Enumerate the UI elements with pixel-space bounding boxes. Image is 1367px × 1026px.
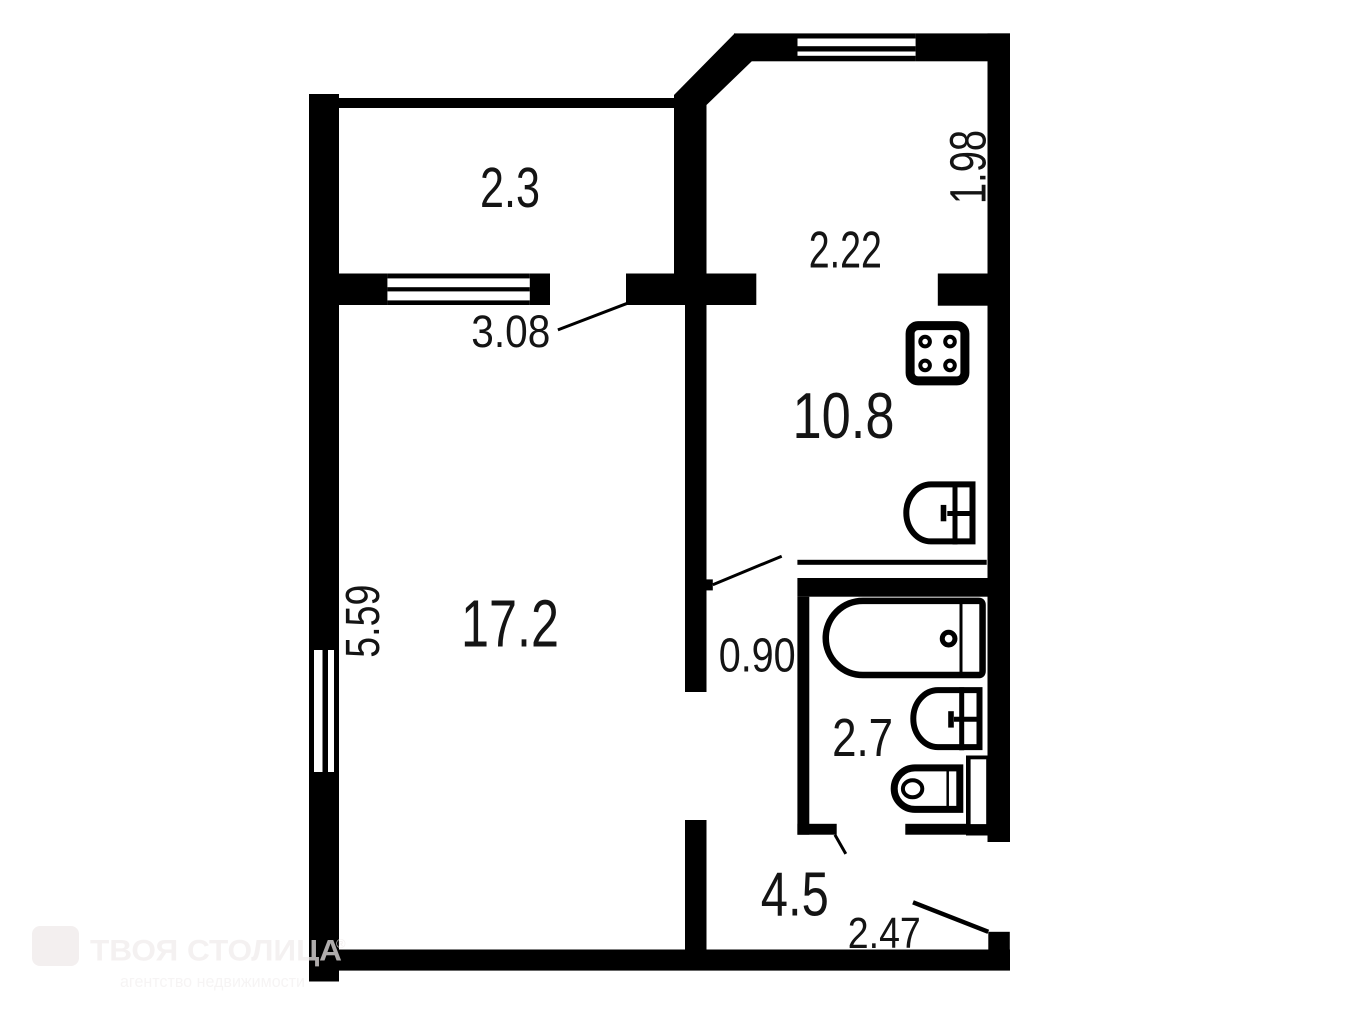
svg-text:2.3: 2.3 bbox=[480, 157, 540, 220]
svg-text:10.8: 10.8 bbox=[793, 379, 895, 452]
svg-text:ТВОЯ СТОЛИЦА: ТВОЯ СТОЛИЦА bbox=[90, 935, 342, 968]
svg-text:агентство недвижимости: агентство недвижимости bbox=[120, 972, 305, 991]
svg-text:®: ® bbox=[336, 936, 346, 951]
svg-text:2.22: 2.22 bbox=[809, 221, 882, 279]
svg-text:5.59: 5.59 bbox=[336, 585, 390, 658]
svg-text:17.2: 17.2 bbox=[461, 587, 559, 662]
svg-text:0.90: 0.90 bbox=[719, 630, 796, 683]
svg-text:3.08: 3.08 bbox=[471, 306, 550, 357]
svg-text:2.7: 2.7 bbox=[832, 708, 893, 768]
svg-text:2.47: 2.47 bbox=[848, 910, 921, 958]
svg-text:4.5: 4.5 bbox=[761, 860, 829, 930]
svg-text:1.98: 1.98 bbox=[940, 130, 997, 204]
